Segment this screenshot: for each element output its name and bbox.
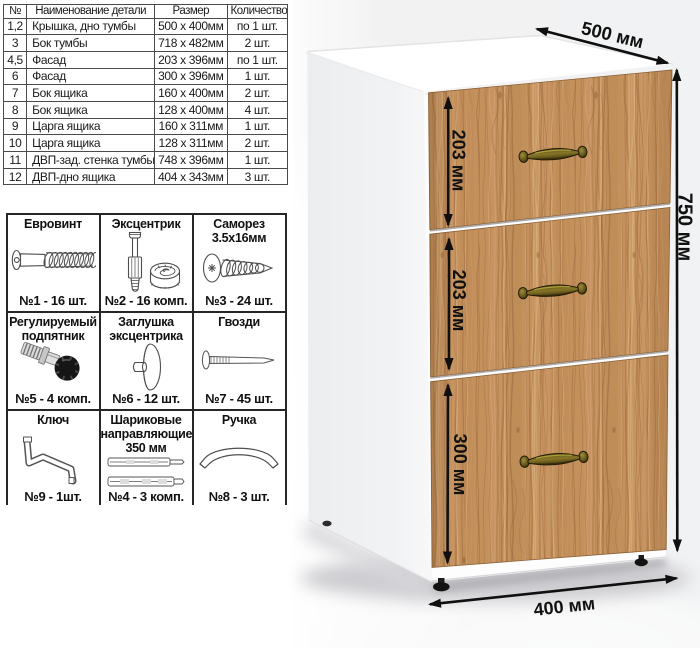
svg-text:203 мм: 203 мм	[449, 270, 469, 332]
svg-text:300 мм: 300 мм	[450, 434, 470, 496]
svg-text:203 мм: 203 мм	[449, 130, 469, 192]
svg-text:750 мм: 750 мм	[674, 193, 696, 262]
